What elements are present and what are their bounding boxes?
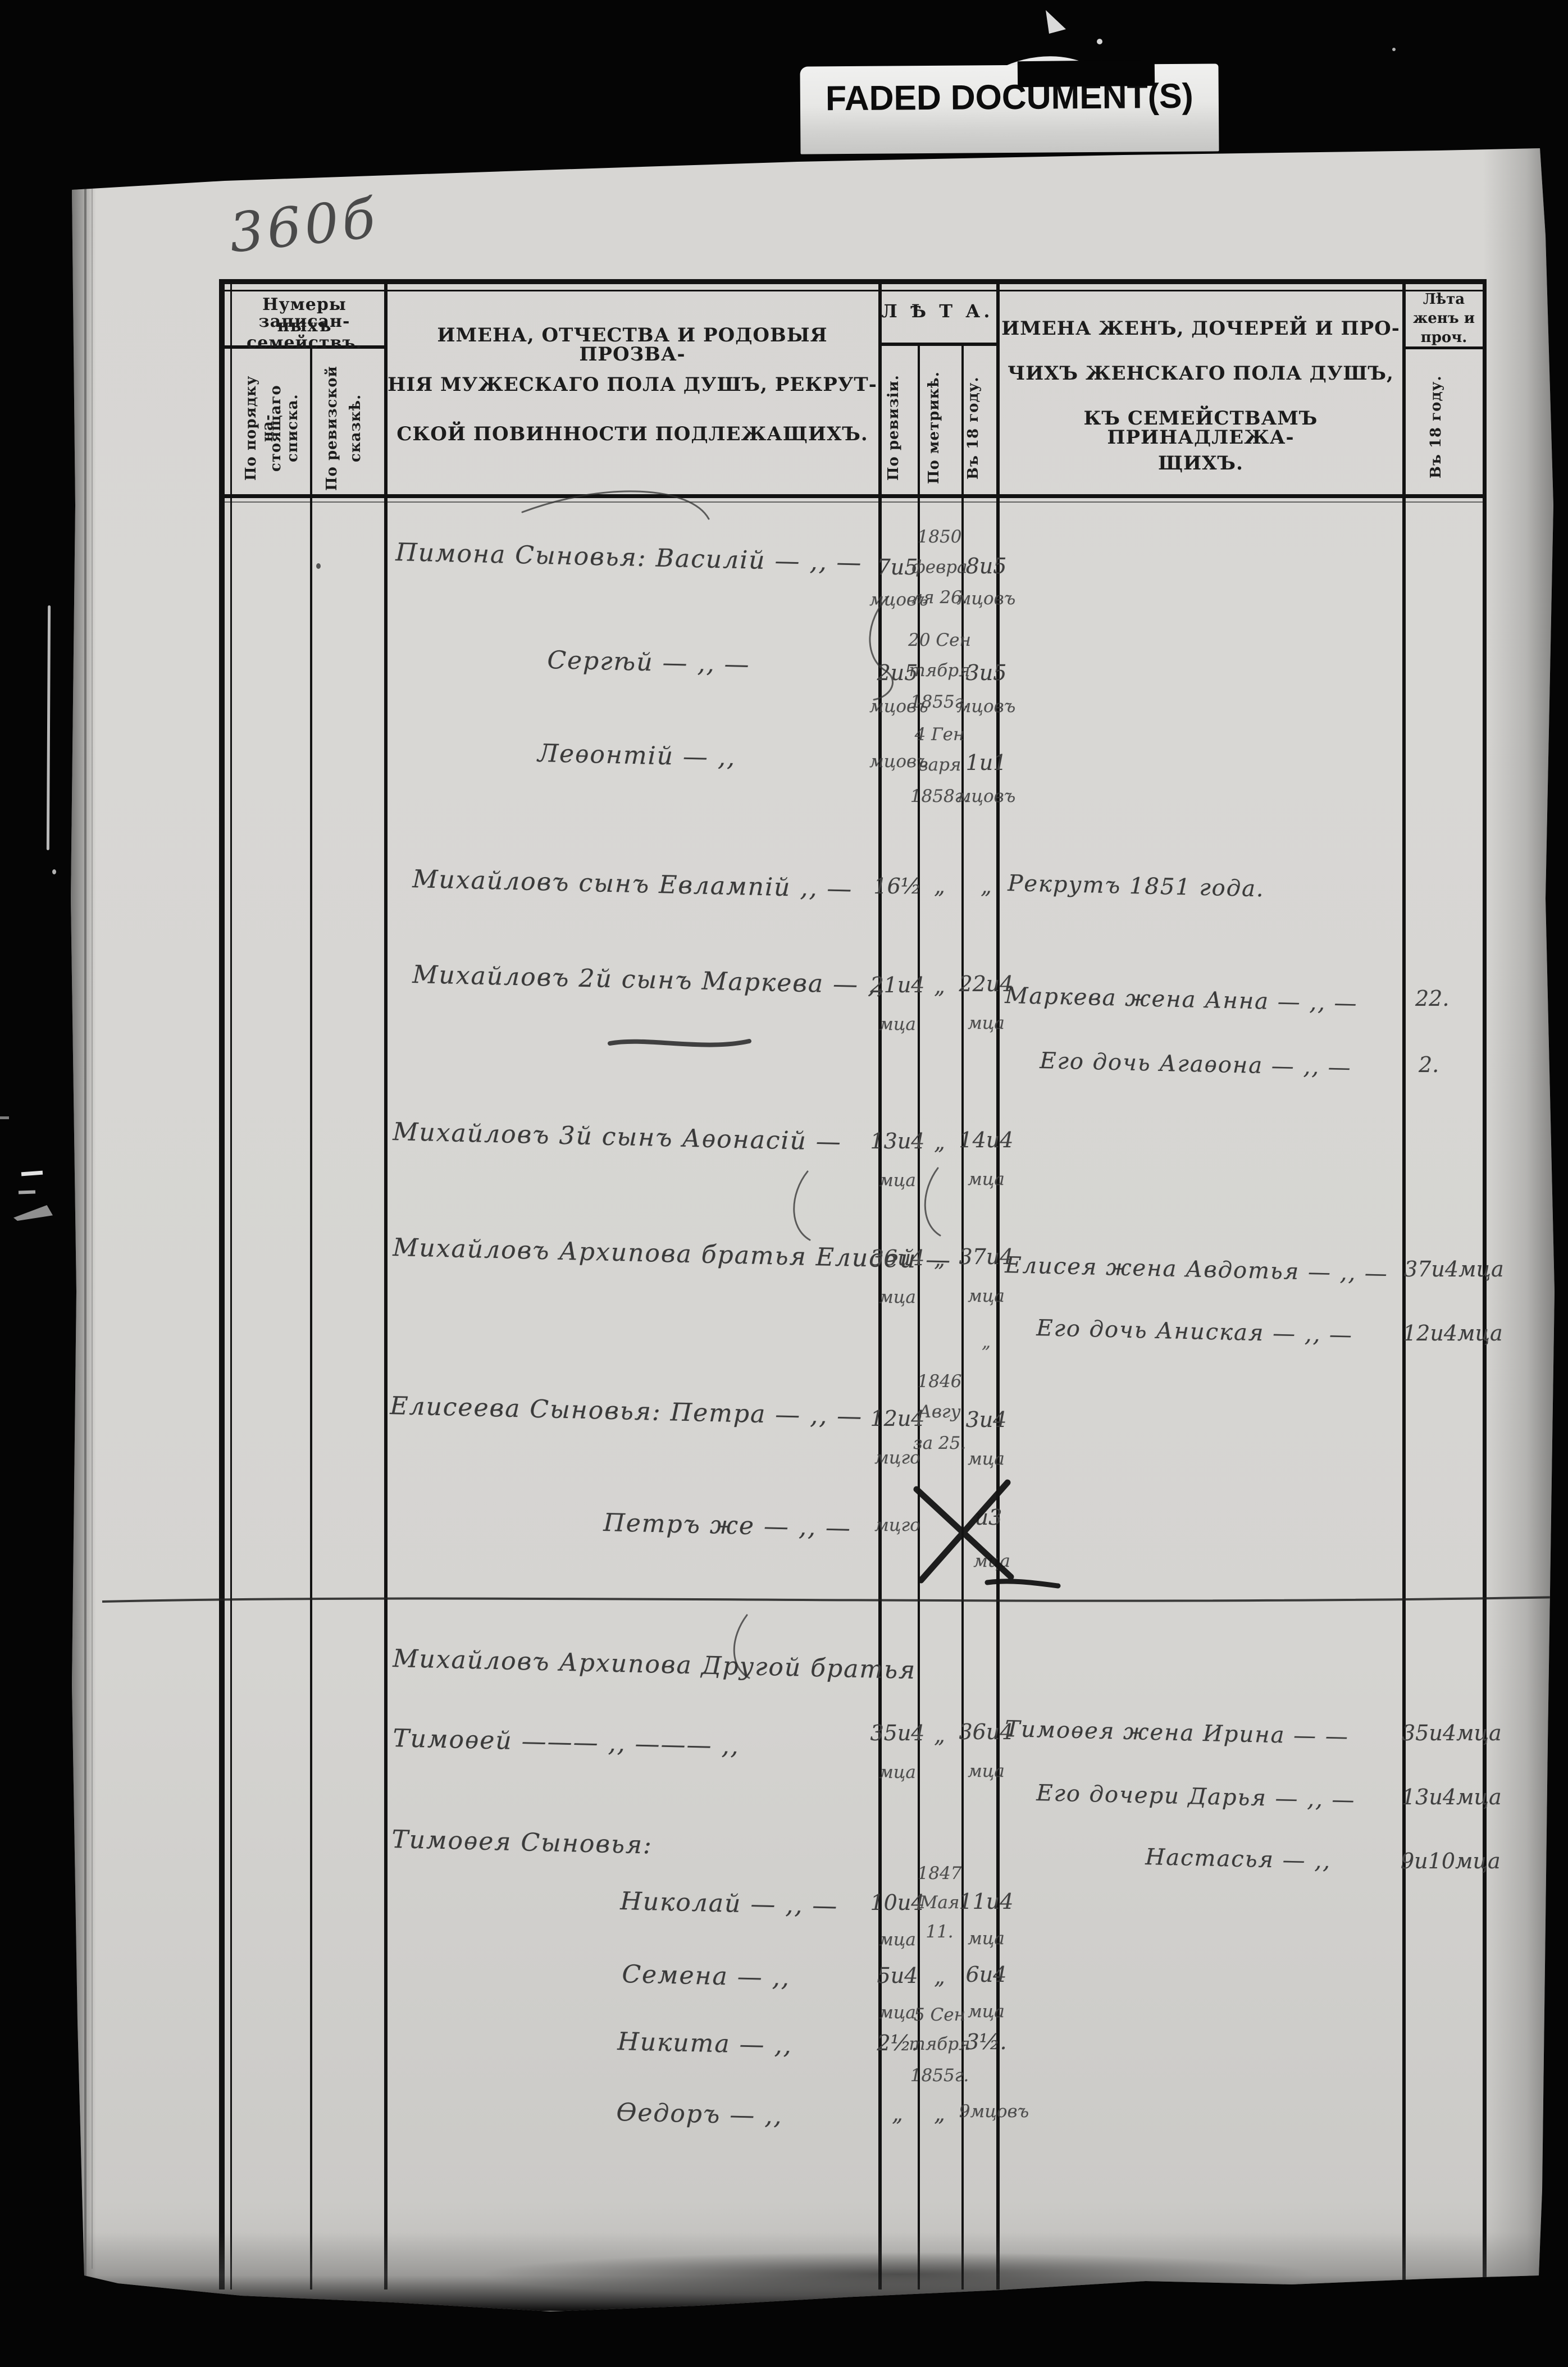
note-recruit: Рекрутъ 1851 года. <box>1008 870 1265 902</box>
male-entry: Михайловъ 2й сынъ Маркева — ‚‚ <box>412 960 886 1000</box>
female-age-in-year: Въ 18 году. <box>1428 362 1461 491</box>
col-rule-leta <box>878 279 882 2290</box>
film-tear <box>13 1205 53 1221</box>
male-entry: Семена — ‚‚ <box>622 1960 790 1992</box>
male-entry: Никита — ‚‚ <box>617 2027 792 2060</box>
table-left-rule <box>219 279 225 2290</box>
male-entry: Тимоѳея Сыновья: <box>391 1825 653 1860</box>
metric-date: 1846 <box>908 1371 972 1392</box>
male-entry: Михайловъ 3й сынъ Аѳонасій — <box>393 1118 842 1156</box>
age-in-year: 6и4 <box>952 1962 1020 1987</box>
female-age: 35и4мца <box>1402 1721 1502 1745</box>
age-in-year: 1и1 <box>952 750 1020 775</box>
age-in-year: 9мцовъ <box>949 2101 1039 2122</box>
male-entry: Ѳедоръ — ‚‚ <box>616 2098 783 2131</box>
female-entry: Настасья — ‚‚ <box>1145 1844 1331 1874</box>
male-entry: Тимоѳей ——— ‚‚ ——— ‚‚ <box>393 1724 740 1761</box>
male-entry: Леѳонтій — ‚‚ <box>537 739 736 772</box>
name-underline <box>610 1041 749 1045</box>
metric-date: 5 Сен <box>908 2005 972 2025</box>
paper-crease <box>92 180 93 2269</box>
metric-date: 4 Ген <box>908 724 972 745</box>
age-in-year-unit: мца <box>952 1013 1020 1033</box>
age-in-year-unit: мцовъ <box>952 786 1020 806</box>
female-age: 37и4мца <box>1404 1257 1504 1281</box>
female-entry: Его дочь Аниская — ‚‚ — <box>1036 1315 1353 1348</box>
age-in-year-unit: мца <box>958 1551 1025 1571</box>
age-in-year-unit: мца <box>952 1169 1020 1189</box>
section-separator-line <box>102 1597 1562 1602</box>
metric-date: 20 Сен <box>908 630 972 650</box>
female-entry: Его дочь Агаѳона — ‚‚ — <box>1040 1048 1352 1081</box>
film-speck <box>52 869 56 874</box>
female-age-header: женъ и <box>1405 311 1483 326</box>
col-header-order-list: стоящаго списка. <box>267 362 290 494</box>
age-by-revision-unit: мца <box>869 1170 926 1191</box>
age-in-year-unit: мца <box>952 1286 1020 1306</box>
age-in-year-unit: мца <box>952 1449 1020 1469</box>
col-header-in-year: Въ 18 году. <box>965 364 990 492</box>
age-in-year: 3и4 <box>952 1407 1020 1432</box>
age-in-year: 8и5 <box>952 554 1020 578</box>
leta-group-underline <box>878 343 999 346</box>
col-header-revision-tale: По ревизской <box>323 362 346 494</box>
film-scratch <box>47 605 51 850</box>
male-entry: Михайловъ сынъ Евлампій ‚‚ — <box>412 865 853 904</box>
female-names-header: КЪ СЕМЕЙСТВАМЪ ПРИНАДЛЕЖА- <box>1001 409 1401 447</box>
card-notch <box>1018 60 1155 88</box>
age-in-year: 3и5 <box>952 660 1020 685</box>
numbers-group-title: ныхъ семействъ. <box>222 318 386 352</box>
ink-dot <box>316 563 321 569</box>
female-names-header: ИМЕНА ЖЕНЪ, ДОЧЕРЕЙ И ПРО- <box>1001 319 1401 338</box>
col-header-revision-tale: сказкѣ. <box>347 362 370 494</box>
col-header-order-list: По порядку на- <box>243 362 265 494</box>
female-entry: Его дочери Дарья — ‚‚ — <box>1036 1780 1356 1813</box>
male-entry: Сергѣй — ‚‚ — <box>547 646 750 679</box>
female-age: 22. <box>1415 986 1449 1011</box>
col-rule-female-age <box>1402 279 1406 2290</box>
metric-date: 1847 <box>908 1863 972 1883</box>
age-by-revision-unit: мца <box>869 1014 926 1034</box>
age-in-year-unit: мца <box>952 1928 1020 1949</box>
col-rule-order <box>310 345 312 2290</box>
female-names-header: ЧИХЪ ЖЕНСКАГО ПОЛА ДУШЪ, <box>1001 364 1401 383</box>
table-right-rule <box>1483 279 1487 2290</box>
age-in-year: 14и4 <box>952 1128 1020 1152</box>
metric-date: 1855г. <box>908 2065 972 2086</box>
document-page: 360б Нумеры записан- ныхъ семействъ. По … <box>0 0 1568 2367</box>
male-entry: Елисеева Сыновья: Петра — ‚‚ — <box>390 1392 863 1431</box>
film-speck <box>0 1116 9 1119</box>
col-header-by-metric: По метрикѣ. <box>926 364 951 492</box>
paper-bottom-blob <box>477 2252 1320 2297</box>
page-number: 360б <box>226 186 381 264</box>
female-age-underline <box>1404 346 1483 349</box>
table-top-rule <box>220 279 1485 284</box>
film-scratch <box>21 1171 43 1176</box>
female-age: 9и10мца <box>1401 1849 1501 1873</box>
header-bottom-rule <box>220 494 1485 498</box>
metric-date: 1850 <box>908 527 972 547</box>
col-rule-names <box>384 279 388 2290</box>
female-names-header: ЩИХЪ. <box>1001 454 1401 473</box>
male-names-header: НІЯ МУЖЕСКАГО ПОЛА ДУШЪ, РЕКРУТ- <box>388 375 877 394</box>
age-in-year-unit: мцовъ <box>952 696 1020 717</box>
male-names-header: СКОЙ ПОВИННОСТИ ПОДЛЕЖАЩИХЪ. <box>388 425 877 444</box>
age-in-year-ditto: „ <box>952 1332 1020 1352</box>
paper-crease <box>84 168 86 2280</box>
table-top-rule-thin <box>220 290 1485 291</box>
male-entry: Пимона Сыновья: Василій — ‚‚ — <box>395 538 863 577</box>
paper-right-edge-shadow <box>1483 148 1556 2282</box>
microfilm-scan: FADED DOCUMENT(S) 360б Нумеры записан- н… <box>0 0 1568 2367</box>
age-in-year-unit: мца <box>952 1761 1020 1781</box>
male-entry: Михайловъ Архипова Другой братья <box>393 1644 917 1685</box>
table-left-rule-thin <box>230 279 232 2290</box>
male-entry: Петръ же — ‚‚ — <box>603 1508 852 1543</box>
male-entry: Николай — ‚‚ — <box>620 1887 838 1921</box>
female-entry: Тимоѳея жена Ирина — — <box>1005 1716 1349 1750</box>
age-in-year: и3 <box>955 1505 1022 1530</box>
col-header-by-revision: По ревизіи. <box>885 364 911 492</box>
female-entry: Елисея жена Авдотья — ‚‚ — <box>1005 1252 1388 1287</box>
female-age: 2. <box>1419 1052 1439 1077</box>
male-entry: Михайловъ Архипова братья Елисей — <box>393 1233 952 1275</box>
col-rule-female <box>996 279 1000 2290</box>
faded-document-label-card: FADED DOCUMENT(S) <box>800 63 1219 154</box>
female-age-header: Лѣта <box>1405 292 1483 307</box>
age-by-revision-unit: мцго <box>869 1515 926 1535</box>
female-age: 12и4мца <box>1403 1321 1503 1346</box>
header-bottom-rule-thin <box>220 501 1485 503</box>
age-in-year: 3½. <box>952 2029 1020 2054</box>
age-group-title: Л Ѣ Т А. <box>878 302 996 320</box>
female-age: 13и4мца <box>1402 1785 1502 1809</box>
age-in-year: 11и4 <box>952 1889 1020 1914</box>
age-by-revision-unit: мца <box>869 1287 926 1307</box>
age-in-year-unit: мцовъ <box>952 589 1020 609</box>
female-entry: Маркева жена Анна — ‚‚ — <box>1005 983 1358 1016</box>
female-age-header: проч. <box>1405 330 1483 345</box>
male-names-header: ИМЕНА, ОТЧЕСТВА И РОДОВЫЯ ПРОЗВА- <box>388 326 877 364</box>
age-by-revision-unit: мца <box>869 1762 926 1782</box>
film-scratch <box>19 1190 35 1194</box>
